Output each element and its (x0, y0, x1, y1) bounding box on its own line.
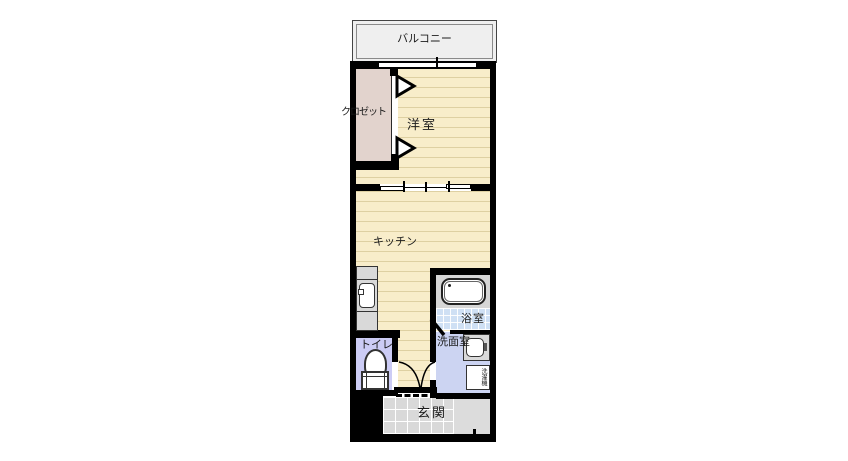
washer-label: 洗濯機 (470, 368, 486, 388)
bathtub-drain-dot (448, 284, 451, 287)
wall-bottom (383, 434, 496, 442)
balcony-window-tick (436, 57, 438, 69)
floor-plan: バルコニー 洗濯機 (0, 0, 848, 461)
toilet-tank-line-right (384, 371, 385, 390)
balcony-label: バルコニー (352, 34, 497, 45)
room-divider-wall-left (350, 184, 380, 191)
closet-top-stub (390, 67, 398, 76)
bathroom-top-wall (430, 268, 496, 275)
front-door-tick (473, 429, 476, 435)
kitchen-counter-line-2 (356, 311, 378, 312)
kitchen-sink (359, 283, 375, 308)
porch-floor (453, 397, 490, 434)
closet-door-gap (392, 75, 398, 155)
service-shaft-block (350, 394, 383, 442)
porch-divider-line (453, 397, 454, 434)
wall-right (490, 61, 496, 442)
western-room-label: 洋室 (407, 118, 437, 131)
bathroom-label: 浴室 (461, 314, 485, 325)
entrance-step-line (396, 394, 436, 397)
room-divider-wall-right (471, 184, 496, 191)
kitchen-sink-tap (358, 289, 364, 295)
sliding-door-tick-2 (425, 182, 427, 192)
toilet-label: トイレ (360, 340, 393, 351)
kitchen-label: キッチン (373, 237, 417, 248)
hallway-threshold-bar (394, 387, 437, 393)
closet-label: クロゼット (341, 108, 386, 118)
entrance-label: 玄関 (417, 406, 447, 419)
toilet-tank-lid-line (361, 376, 389, 377)
washroom-label: 洗面室 (437, 337, 470, 348)
sliding-door-panel-left (380, 186, 405, 191)
sliding-door-tick-1 (403, 181, 405, 192)
closet-bottom-stub (391, 154, 399, 163)
hallway-floor (398, 330, 430, 387)
toilet-tank-line-left (366, 371, 367, 390)
kitchen-counter-line-1 (356, 279, 378, 280)
bathroom-left-wall (430, 275, 436, 362)
sliding-door-tick-3 (448, 181, 450, 192)
vanity-tap (484, 343, 487, 351)
washroom-bottom-wall (436, 393, 496, 399)
